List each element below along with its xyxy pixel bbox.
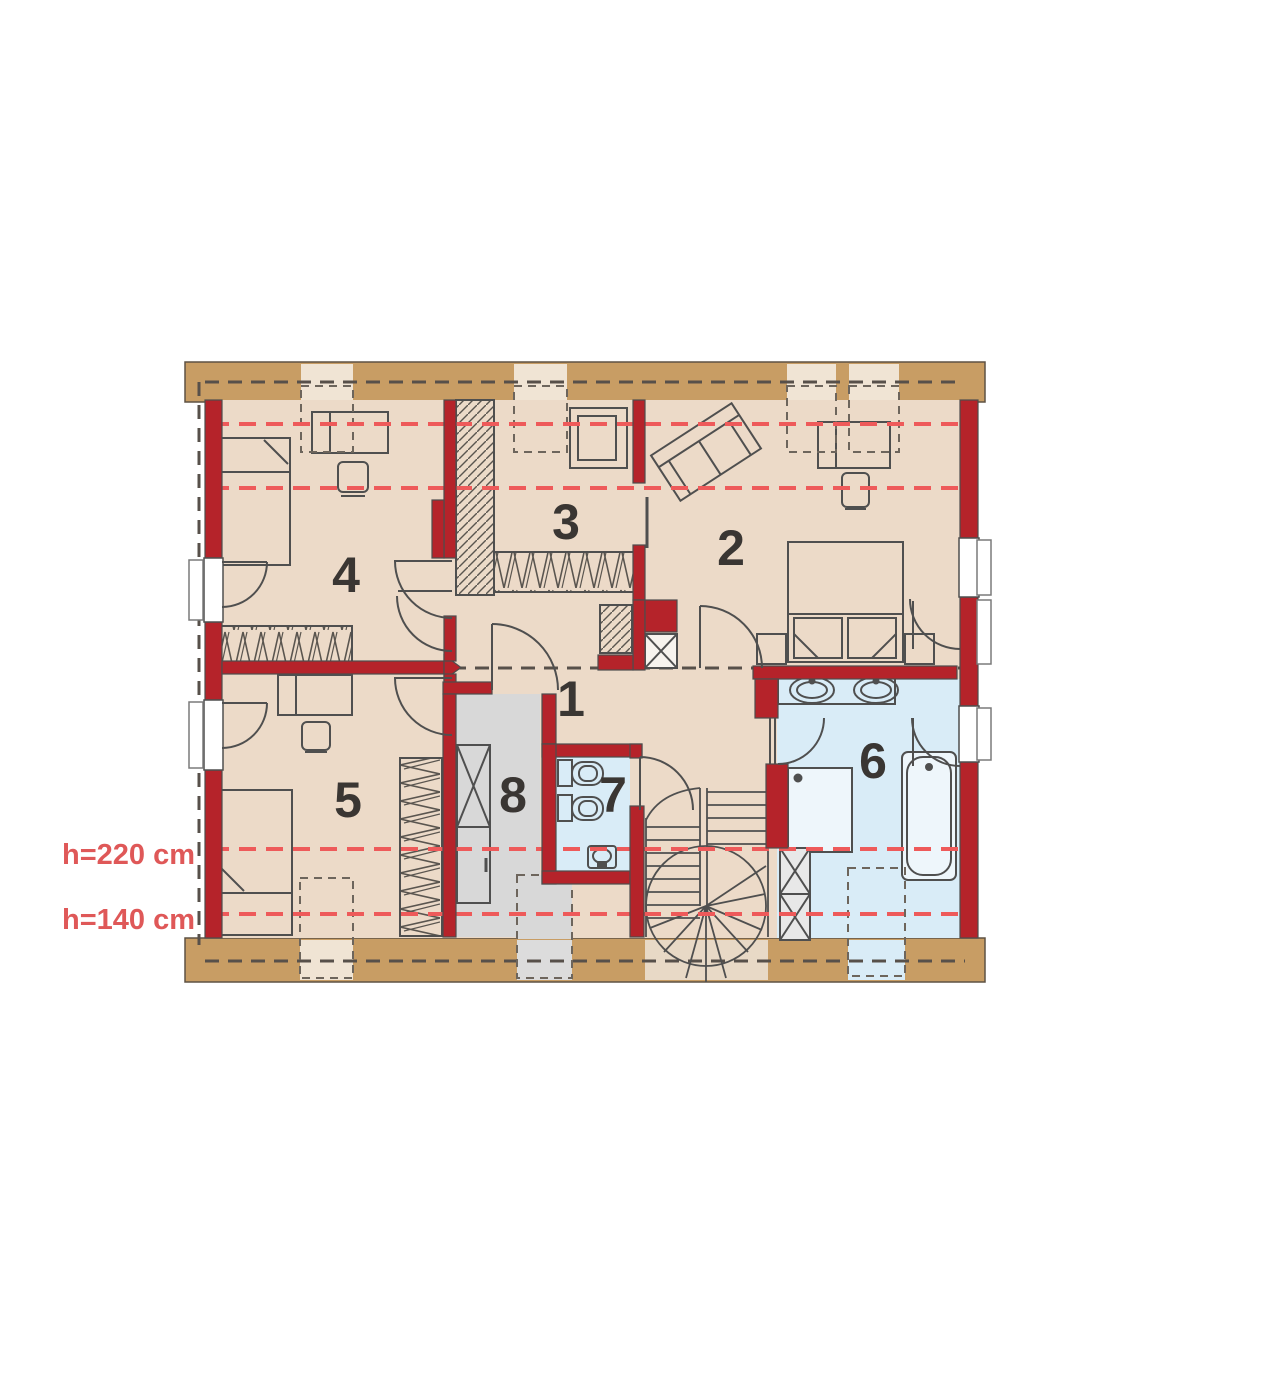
- bathtub: [902, 752, 956, 880]
- room-number-1: 1: [557, 671, 585, 727]
- floor-plan-page: 1 2 3 4 5 6 7 8 h=220 cm h=140 cm: [0, 0, 1280, 1385]
- room-number-5: 5: [334, 772, 362, 828]
- height-label-220: h=220 cm: [62, 839, 195, 871]
- room-number-8: 8: [499, 767, 527, 823]
- wardrobe: [218, 626, 352, 662]
- room-number-4: 4: [332, 547, 360, 603]
- room-number-6: 6: [859, 733, 887, 789]
- height-label-140: h=140 cm: [62, 904, 195, 936]
- closet: [456, 400, 494, 595]
- wardrobe: [494, 552, 637, 592]
- shelf: [600, 605, 632, 653]
- room-number-7: 7: [599, 767, 627, 823]
- floor-plan-canvas: 1 2 3 4 5 6 7 8 h=220 cm h=140 cm: [0, 0, 1280, 1385]
- room-number-2: 2: [717, 520, 745, 576]
- room-number-3: 3: [552, 494, 580, 550]
